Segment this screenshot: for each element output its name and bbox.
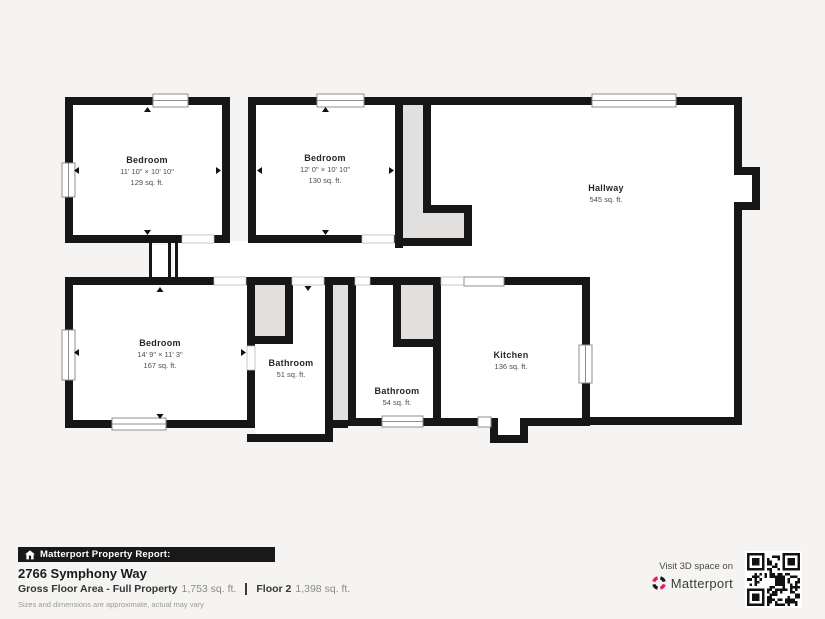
floor-label: Floor 2 <box>256 583 291 595</box>
svg-text:54 sq. ft.: 54 sq. ft. <box>383 398 412 407</box>
svg-text:Bathroom: Bathroom <box>269 358 314 368</box>
visit-3d-text: Visit 3D space on <box>659 561 733 572</box>
property-report-page: Bedroom 11' 10" × 10' 10" 129 sq. ft. Be… <box>0 0 825 619</box>
svg-text:545 sq. ft.: 545 sq. ft. <box>590 195 623 204</box>
svg-text:Hallway: Hallway <box>588 183 624 193</box>
matterport-wordmark: Matterport <box>671 576 733 591</box>
svg-text:51 sq. ft.: 51 sq. ft. <box>277 370 306 379</box>
svg-text:167 sq. ft.: 167 sq. ft. <box>144 361 177 370</box>
gross-floor-area-value: 1,753 sq. ft. <box>181 583 236 595</box>
floor-area-line: Gross Floor Area - Full Property 1,753 s… <box>18 583 350 595</box>
svg-text:12' 0" × 10' 10": 12' 0" × 10' 10" <box>300 165 350 174</box>
qr-code-pattern <box>747 553 800 606</box>
svg-text:14' 9" × 11' 3": 14' 9" × 11' 3" <box>137 350 183 359</box>
house-icon <box>25 550 35 560</box>
svg-text:129 sq. ft.: 129 sq. ft. <box>131 178 164 187</box>
svg-text:Kitchen: Kitchen <box>493 350 528 360</box>
svg-text:Bedroom: Bedroom <box>126 155 168 165</box>
svg-text:Bedroom: Bedroom <box>304 153 346 163</box>
property-address: 2766 Symphony Way <box>18 566 147 581</box>
report-banner: Matterport Property Report: <box>18 547 275 562</box>
svg-text:Bedroom: Bedroom <box>139 338 181 348</box>
disclaimer-text: Sizes and dimensions are approximate, ac… <box>18 600 204 609</box>
svg-text:136 sq. ft.: 136 sq. ft. <box>495 362 528 371</box>
svg-text:11' 10" × 10' 10": 11' 10" × 10' 10" <box>120 167 174 176</box>
gross-floor-area-label: Gross Floor Area - Full Property <box>18 583 177 595</box>
svg-text:130 sq. ft.: 130 sq. ft. <box>309 176 342 185</box>
qr-code <box>745 551 802 608</box>
divider <box>245 583 247 595</box>
room-label-bedroom-3: Bedroom 14' 9" × 11' 3" 167 sq. ft. <box>137 338 183 370</box>
svg-text:Bathroom: Bathroom <box>375 386 420 396</box>
floor-value: 1,398 sq. ft. <box>295 583 350 595</box>
matterport-pinwheel-icon <box>651 575 667 591</box>
matterport-logo: Matterport <box>651 575 733 591</box>
floor-plan: Bedroom 11' 10" × 10' 10" 129 sq. ft. Be… <box>0 0 825 619</box>
report-banner-label: Matterport Property Report: <box>40 549 171 560</box>
